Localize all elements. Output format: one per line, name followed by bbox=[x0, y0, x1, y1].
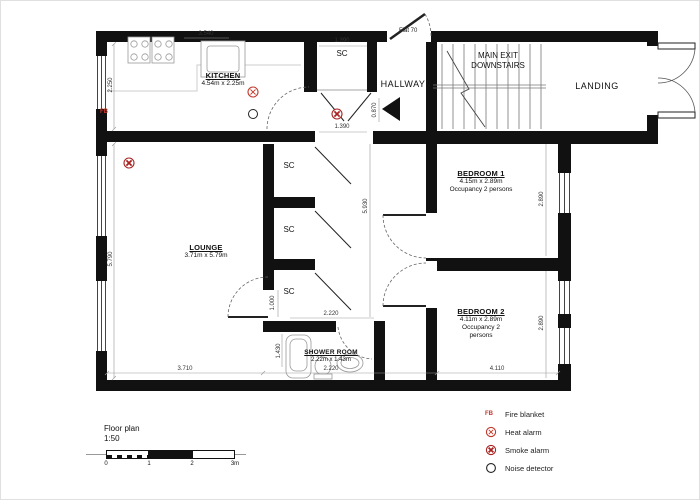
sc3-label: SC bbox=[283, 287, 294, 296]
dim-lounge-left: 5.790 bbox=[108, 251, 114, 266]
kitchen-label: KITCHEN bbox=[206, 71, 241, 80]
entrance-flat-label: Flat 70 bbox=[399, 28, 417, 34]
kitchen-door-arc bbox=[267, 87, 309, 129]
kitchen-noise-detector-icon bbox=[249, 110, 258, 119]
dim-lounge-door: 1.000 bbox=[270, 295, 276, 310]
dim-bedroom2-right: 2.890 bbox=[539, 315, 545, 330]
dim-bedroom1-right: 2.890 bbox=[539, 191, 545, 206]
heat-alarm-icon bbox=[485, 426, 497, 438]
dim-shower-bottom: 2.220 bbox=[323, 366, 338, 372]
bedroom2-door bbox=[383, 263, 426, 306]
dim-bedroom2-bottom: 4.110 bbox=[490, 366, 505, 372]
sc-doors bbox=[315, 147, 351, 310]
bedroom2-size: 4.11m x 2.89m bbox=[460, 316, 503, 323]
scale-segment-3 bbox=[192, 450, 235, 459]
lounge-label: LOUNGE bbox=[189, 243, 222, 252]
dim-lounge-bottom: 3.710 bbox=[177, 366, 192, 372]
dim-shower-left: 1.430 bbox=[276, 343, 282, 358]
main-exit-line2: DOWNSTAIRS bbox=[471, 61, 525, 70]
shower-label: SHOWER ROOM bbox=[304, 349, 357, 356]
hallway-label: HALLWAY bbox=[381, 79, 426, 89]
direction-arrow-icon bbox=[382, 97, 400, 121]
fire-blanket-marker: FB bbox=[100, 109, 108, 115]
dim-sc-bottom: 1.390 bbox=[334, 124, 349, 130]
hallway-smoke-alarm-icon bbox=[332, 109, 342, 119]
scale-segment-1 bbox=[106, 450, 149, 459]
sc2-label: SC bbox=[283, 225, 294, 234]
dim-corridor: 5.930 bbox=[363, 198, 369, 213]
scale-tick-2: 2 bbox=[190, 461, 193, 467]
scale-tick-1: 1 bbox=[147, 461, 150, 467]
scale-tick-3: 3m bbox=[231, 461, 239, 467]
lounge-size: 3.71m x 5.79m bbox=[185, 252, 228, 259]
dim-shower-top: 2.220 bbox=[323, 311, 338, 317]
kitchen-heat-alarm-icon bbox=[248, 87, 258, 97]
legend-row-noise-detector: Noise detector bbox=[485, 459, 553, 477]
floor-plan-canvas: KITCHEN 4.54m x 2.25m HALLWAY MAIN EXIT … bbox=[0, 0, 700, 500]
bedroom1-occupancy: Occupancy 2 persons bbox=[450, 186, 513, 193]
landing-label: LANDING bbox=[575, 81, 619, 91]
shower-size: 2.22m x 1.43m bbox=[311, 357, 351, 363]
scale-title: Floor plan bbox=[104, 424, 266, 433]
bedroom1-door bbox=[383, 215, 426, 258]
lounge-smoke-alarm-icon bbox=[124, 158, 134, 168]
scale-ratio: 1:50 bbox=[104, 434, 266, 443]
sc1-label: SC bbox=[283, 161, 294, 170]
dim-sc-top: 1.390 bbox=[334, 38, 349, 44]
bedroom1-label: BEDROOM 1 bbox=[457, 169, 504, 178]
noise-detector-icon bbox=[485, 462, 497, 474]
scale-bar: Floor plan 1:50 0 1 2 3m bbox=[96, 424, 266, 468]
dim-hall: 0.870 bbox=[372, 102, 378, 117]
legend-label-fire-blanket: Fire blanket bbox=[505, 410, 544, 419]
fb-icon: FB bbox=[485, 411, 493, 417]
scale-bar-graphic: 0 1 2 3m bbox=[96, 446, 266, 468]
legend-label-heat-alarm: Heat alarm bbox=[505, 428, 542, 437]
bedroom2-occupancy-line2: persons bbox=[469, 332, 492, 339]
sc-top-label: SC bbox=[336, 49, 347, 58]
scale-segment-2 bbox=[149, 450, 192, 459]
lounge-door bbox=[228, 277, 268, 317]
legend-row-heat-alarm: Heat alarm bbox=[485, 423, 553, 441]
legend-row-smoke-alarm: Smoke alarm bbox=[485, 441, 553, 459]
bedroom1-size: 4.15m x 2.89m bbox=[460, 178, 503, 185]
smoke-alarm-icon bbox=[485, 444, 497, 456]
legend-label-noise-detector: Noise detector bbox=[505, 464, 553, 473]
legend: FB Fire blanket Heat alarm Smoke alarm bbox=[485, 405, 553, 477]
dim-kitchen-left: 2.250 bbox=[108, 77, 114, 92]
main-exit-line1: MAIN EXIT bbox=[478, 51, 518, 60]
dim-kitchen-top: 3.540 bbox=[198, 31, 213, 37]
legend-row-fire-blanket: FB Fire blanket bbox=[485, 405, 553, 423]
bedroom2-label: BEDROOM 2 bbox=[457, 307, 504, 316]
legend-label-smoke-alarm: Smoke alarm bbox=[505, 446, 549, 455]
bedroom2-occupancy-line1: Occupancy 2 bbox=[462, 324, 500, 331]
entrance-door bbox=[390, 14, 431, 39]
kitchen-size: 4.54m x 2.25m bbox=[202, 80, 245, 87]
landing-double-doors bbox=[658, 43, 695, 118]
sc-top-doors bbox=[321, 93, 371, 121]
scale-tick-0: 0 bbox=[104, 461, 107, 467]
